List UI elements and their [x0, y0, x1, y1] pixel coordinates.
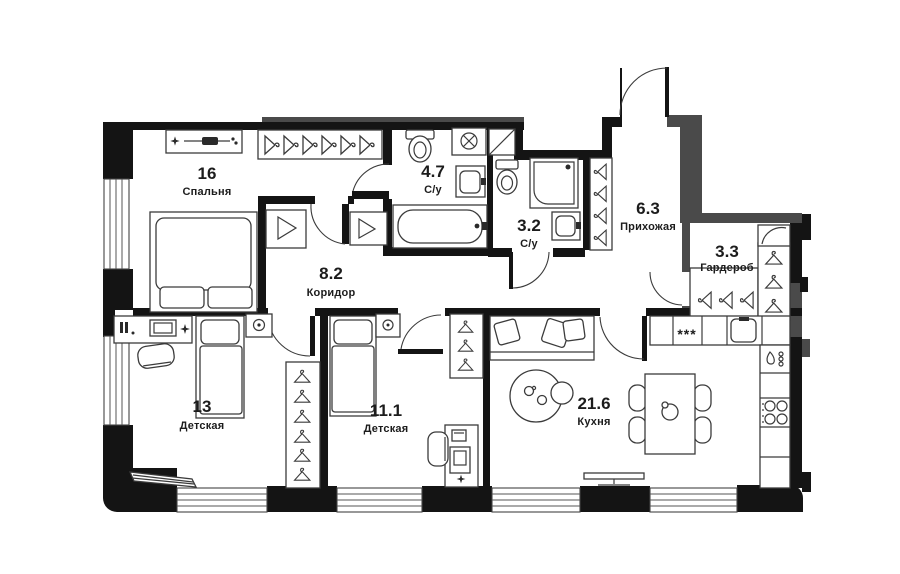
- room-label-kids-room-2: 11.1 Детская: [364, 401, 409, 435]
- bathtub-icon: [393, 205, 488, 248]
- kids2-chair: [428, 432, 448, 466]
- room-area: 11.1: [370, 401, 402, 420]
- duct-shaft: [489, 129, 515, 155]
- wardrobe-rack-bottom: [690, 268, 758, 318]
- window-left-1: [104, 179, 129, 269]
- kitchen-counter-top: ***: [650, 316, 790, 345]
- dining-table: [629, 374, 711, 454]
- round-table: [510, 370, 573, 422]
- room-area: 4.7: [421, 162, 445, 181]
- room-name: Кухня: [577, 416, 610, 428]
- kids2-desk: [445, 425, 478, 487]
- kids-room-2-door: [398, 315, 443, 354]
- room-name: С/у: [424, 184, 442, 196]
- window-bottom-1: [177, 488, 267, 512]
- shower-icon: [530, 158, 578, 208]
- window-bottom-3: [492, 488, 580, 512]
- wardrobe-rack-side: [758, 243, 790, 320]
- kitchen-counter-right: [760, 345, 790, 488]
- room-label-bathroom-small: 3.2 С/у: [517, 216, 541, 250]
- kitchen-door: [600, 316, 647, 361]
- kids1-nightstand: [246, 314, 272, 337]
- room-area: 21.6: [577, 394, 610, 413]
- room-name: С/у: [520, 238, 538, 250]
- toilet-icon: [496, 160, 518, 194]
- tv-icon: [584, 473, 644, 485]
- bathroom-large-door: [352, 164, 389, 199]
- toilet-icon: [406, 130, 434, 162]
- room-name: Детская: [364, 423, 409, 435]
- window-left-2: [104, 336, 129, 425]
- room-label-bedroom: 16 Спальня: [183, 164, 232, 198]
- kids2-nightstand: [376, 314, 400, 337]
- room-name: Спальня: [183, 186, 232, 198]
- bedroom-bed: [150, 212, 257, 312]
- bathroom-small-door: [509, 252, 549, 289]
- room-area: 6.3: [636, 199, 660, 218]
- bedroom-wardrobe: [258, 130, 382, 159]
- room-name: Коридор: [307, 287, 356, 299]
- room-label-wardrobe: 3.3 Гардероб: [700, 242, 754, 274]
- sofa: [490, 316, 594, 360]
- window-bottom-4: [650, 488, 737, 512]
- room-label-hallway: 6.3 Прихожая: [620, 199, 676, 233]
- bedroom-door: [311, 204, 349, 244]
- room-name: Прихожая: [620, 221, 676, 233]
- kids-room-1-door: [268, 316, 315, 356]
- kitchen-sink-icon: [731, 319, 756, 342]
- kids-wardrobe: [286, 362, 320, 488]
- corridor-cabinet-1: [266, 210, 306, 248]
- room-area: 13: [193, 397, 212, 416]
- kids1-chair: [137, 343, 176, 370]
- sink-icon: [552, 212, 581, 240]
- room-name: Детская: [180, 420, 225, 432]
- wardrobe-door: [650, 272, 682, 305]
- washing-machine-icon: [452, 128, 486, 155]
- room-label-corridor: 8.2 Коридор: [307, 264, 356, 299]
- hob-knobs-icon: ***: [677, 326, 696, 342]
- entry-door: [620, 67, 669, 117]
- room-area: 16: [198, 164, 217, 183]
- room-name: Гардероб: [700, 262, 754, 274]
- hallway-coat-rack: [590, 158, 612, 250]
- window-bottom-2: [337, 488, 422, 512]
- bedroom-dresser: [166, 130, 242, 153]
- room-area: 3.2: [517, 216, 541, 235]
- sink-icon: [456, 166, 486, 197]
- floor-plan: ***: [0, 0, 900, 574]
- corner-shelf: [758, 225, 790, 246]
- room-area: 8.2: [319, 264, 343, 283]
- corridor-cabinet-2: [350, 212, 387, 245]
- floor-plan-canvas: ***: [0, 0, 900, 574]
- kids1-desk: [114, 316, 192, 343]
- room-label-kitchen: 21.6 Кухня: [577, 394, 610, 428]
- room-area: 3.3: [715, 242, 739, 261]
- room-label-bathroom-large: 4.7 С/у: [421, 162, 445, 196]
- kids2-wardrobe: [450, 314, 483, 378]
